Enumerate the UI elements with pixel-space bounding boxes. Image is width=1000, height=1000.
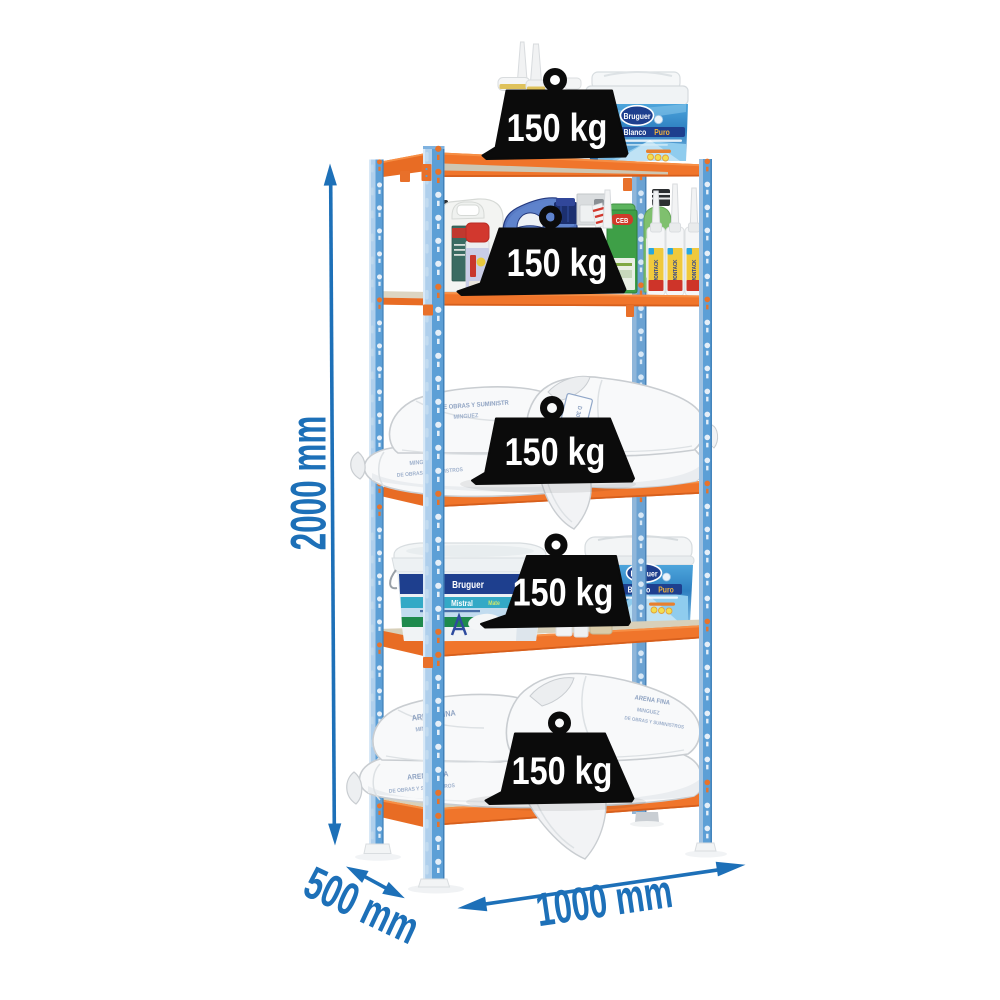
svg-text:Puro: Puro [658, 585, 674, 595]
svg-text:Puro: Puro [654, 127, 670, 137]
svg-text:Blanco: Blanco [624, 127, 647, 137]
svg-text:Mistral: Mistral [451, 598, 473, 608]
svg-text:2000 mm: 2000 mm [280, 416, 336, 551]
svg-text:MONTACK: MONTACK [692, 259, 698, 282]
svg-text:150 kg: 150 kg [507, 106, 608, 149]
svg-text:MONTACK: MONTACK [654, 259, 660, 282]
svg-text:CEB: CEB [616, 218, 629, 226]
svg-text:150 kg: 150 kg [512, 749, 613, 792]
svg-text:150 kg: 150 kg [513, 571, 614, 614]
svg-text:Bruguer: Bruguer [623, 111, 650, 121]
svg-text:MONTACK: MONTACK [673, 259, 679, 282]
svg-text:150 kg: 150 kg [507, 241, 608, 284]
svg-text:Bruguer: Bruguer [452, 579, 484, 590]
svg-text:150 kg: 150 kg [505, 430, 606, 473]
svg-text:Mate: Mate [488, 601, 500, 607]
